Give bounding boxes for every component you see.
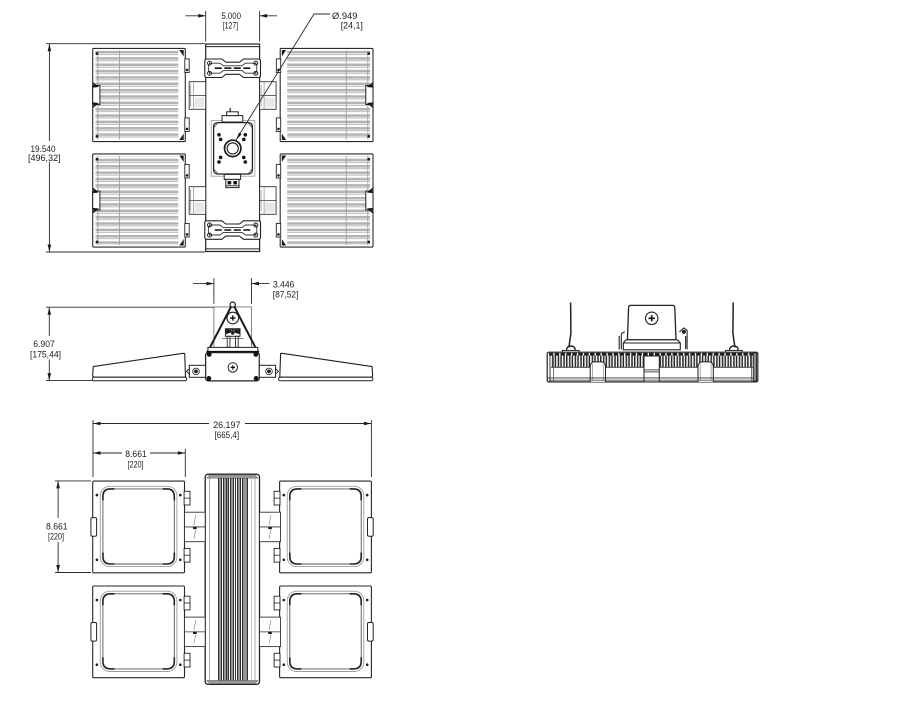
svg-text:[87,52]: [87,52] xyxy=(273,289,299,300)
svg-text:[220]: [220] xyxy=(128,459,144,470)
svg-text:[24,1]: [24,1] xyxy=(341,20,363,31)
svg-text:[175,44]: [175,44] xyxy=(30,349,61,360)
svg-text:[496,32]: [496,32] xyxy=(28,153,61,164)
svg-text:[665,4]: [665,4] xyxy=(215,430,240,441)
svg-text:[220]: [220] xyxy=(48,531,64,542)
svg-text:8.661: 8.661 xyxy=(125,449,147,460)
svg-text:[127]: [127] xyxy=(223,21,238,32)
